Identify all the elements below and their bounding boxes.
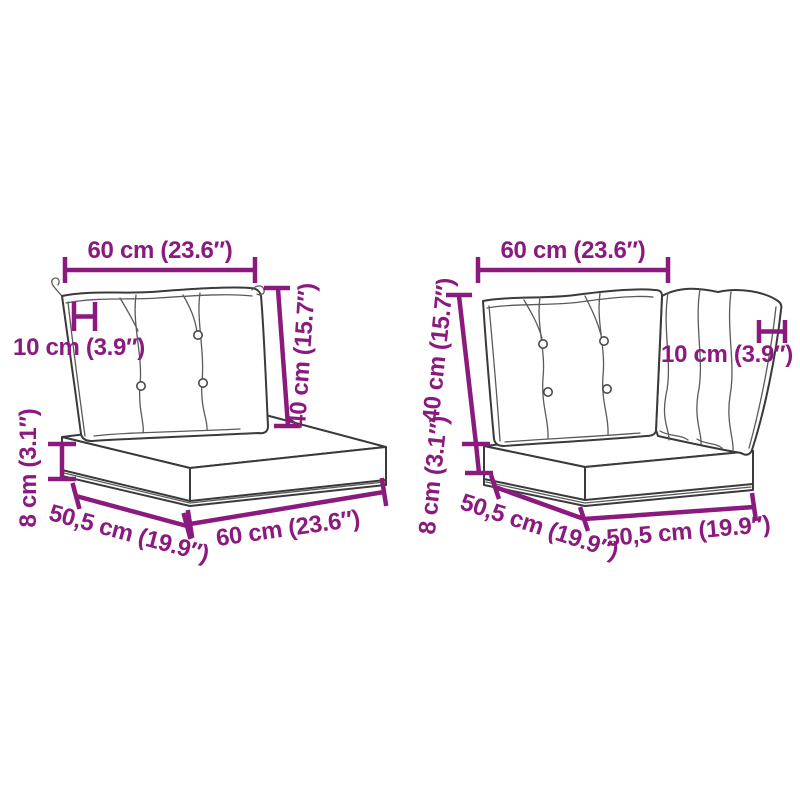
back-cushion-tie-left xyxy=(52,278,62,296)
dim-label-left-seat-width: 60 cm (23.6″) xyxy=(214,505,361,552)
dim-label-right-seat-thickness: 8 cm (3.1″) xyxy=(414,415,453,536)
tufting-button xyxy=(544,388,552,396)
diagram-svg: 60 cm (23.6″) 10 cm (3.9″) 40 cm (15.7″)… xyxy=(0,0,800,800)
product-dimension-diagram: 60 cm (23.6″) 10 cm (3.9″) 40 cm (15.7″)… xyxy=(0,0,800,800)
tufting-button xyxy=(137,382,145,390)
tufting-button xyxy=(199,379,207,387)
dim-label-right-top-width: 60 cm (23.6″) xyxy=(500,237,645,264)
tufting-button xyxy=(600,337,608,345)
dim-label-right-seat-depth: 50,5 cm (19.9″) xyxy=(457,489,622,565)
dim-label-left-back-thickness: 10 cm (3.9″) xyxy=(13,334,145,361)
dim-label-left-seat-thickness: 8 cm (3.1″) xyxy=(15,409,42,528)
back-cushion-front-drawing xyxy=(483,289,662,446)
dim-label-left-back-height: 40 cm (15.7″) xyxy=(284,282,321,429)
figure-left-cushion-set: 60 cm (23.6″) 10 cm (3.9″) 40 cm (15.7″)… xyxy=(13,237,386,568)
tufting-button xyxy=(194,331,202,339)
tufting-button xyxy=(603,385,611,393)
dim-label-right-back-thickness: 10 cm (3.9″) xyxy=(661,341,793,368)
figure-right-corner-cushion-set: 60 cm (23.6″) 40 cm (15.7″) 8 cm (3.1″) … xyxy=(414,237,793,565)
dim-label-left-top-width: 60 cm (23.6″) xyxy=(87,237,232,264)
back-cushion-front-outline xyxy=(483,289,662,446)
dim-label-right-back-height: 40 cm (15.7″) xyxy=(418,277,460,424)
back-cushion-right-outline xyxy=(656,289,781,455)
tufting-button xyxy=(539,340,547,348)
back-cushion-right-drawing xyxy=(656,289,781,455)
